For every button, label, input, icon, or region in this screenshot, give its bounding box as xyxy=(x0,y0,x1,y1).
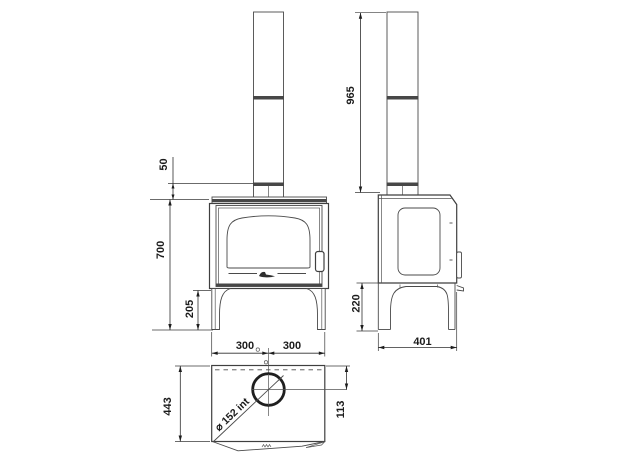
front-chimney-pipe xyxy=(254,12,284,200)
dim-443-label: 443 xyxy=(162,397,174,415)
dim-113-label: 113 xyxy=(335,401,347,419)
dim-700-arrow-top xyxy=(168,200,171,206)
front-right-leg xyxy=(307,289,326,330)
dim-443-arrow-bottom xyxy=(179,436,182,442)
side-door-handle xyxy=(457,252,462,278)
side-leg-arch xyxy=(391,287,449,330)
front-chimney-joint-band xyxy=(253,96,284,100)
drawing-svg: 50 700 205 300 300 xyxy=(0,0,624,460)
dim-113-arrow-top xyxy=(345,366,348,372)
dim-205-arrow-bottom xyxy=(196,324,199,330)
dim-300-arrow-center-right xyxy=(262,352,268,355)
dim-220-arrow-top xyxy=(360,283,363,289)
side-chimney-joint-band xyxy=(387,96,419,100)
side-handle-hook xyxy=(457,286,464,292)
top-view: ⌀ 152 int xyxy=(212,348,347,451)
dim-401-arrow-left xyxy=(378,346,384,349)
front-top-cap-band xyxy=(212,199,327,202)
dim-700-arrow-bottom xyxy=(168,324,171,330)
dim-205-arrow-top xyxy=(196,291,199,297)
dim-300-arrow-center-left xyxy=(268,352,274,355)
dim-401-label: 401 xyxy=(413,336,431,348)
dim-50-label: 50 xyxy=(158,158,170,170)
dim-50-arrow-bottom xyxy=(172,195,175,200)
dim-965-arrow-bottom xyxy=(359,187,362,193)
dim-443-arrow-top xyxy=(179,366,182,372)
dim-401-arrow-right xyxy=(451,346,457,349)
dim-965-arrow-top xyxy=(359,13,362,19)
front-door-handle xyxy=(316,252,325,272)
dim-113-arrow-bottom xyxy=(345,384,348,390)
top-reference-mark xyxy=(264,361,267,364)
stove-technical-drawing: 50 700 205 300 300 xyxy=(0,0,624,460)
front-left-leg xyxy=(212,289,231,330)
side-chimney-pipe xyxy=(387,12,418,195)
dim-300-reference-mark xyxy=(256,348,259,351)
top-logo-mark xyxy=(262,445,271,448)
dim-965-label: 965 xyxy=(345,86,357,104)
dim-700-label: 700 xyxy=(155,241,167,259)
side-flue-collar-band xyxy=(387,183,419,187)
dim-300-left-label: 300 xyxy=(236,340,254,352)
side-view xyxy=(378,12,463,330)
dim-300-arrow-right xyxy=(319,352,325,355)
dim-220-label: 220 xyxy=(351,294,363,312)
dim-205-label: 205 xyxy=(184,300,196,318)
dim-300-arrow-left xyxy=(212,352,218,355)
front-door-bottom-band xyxy=(216,284,322,287)
dim-300-right-label: 300 xyxy=(283,340,301,352)
dim-220-arrow-bottom xyxy=(360,325,363,331)
dim-50-arrow-top xyxy=(172,184,175,189)
front-flue-collar-band xyxy=(253,183,284,187)
front-view xyxy=(210,12,329,330)
